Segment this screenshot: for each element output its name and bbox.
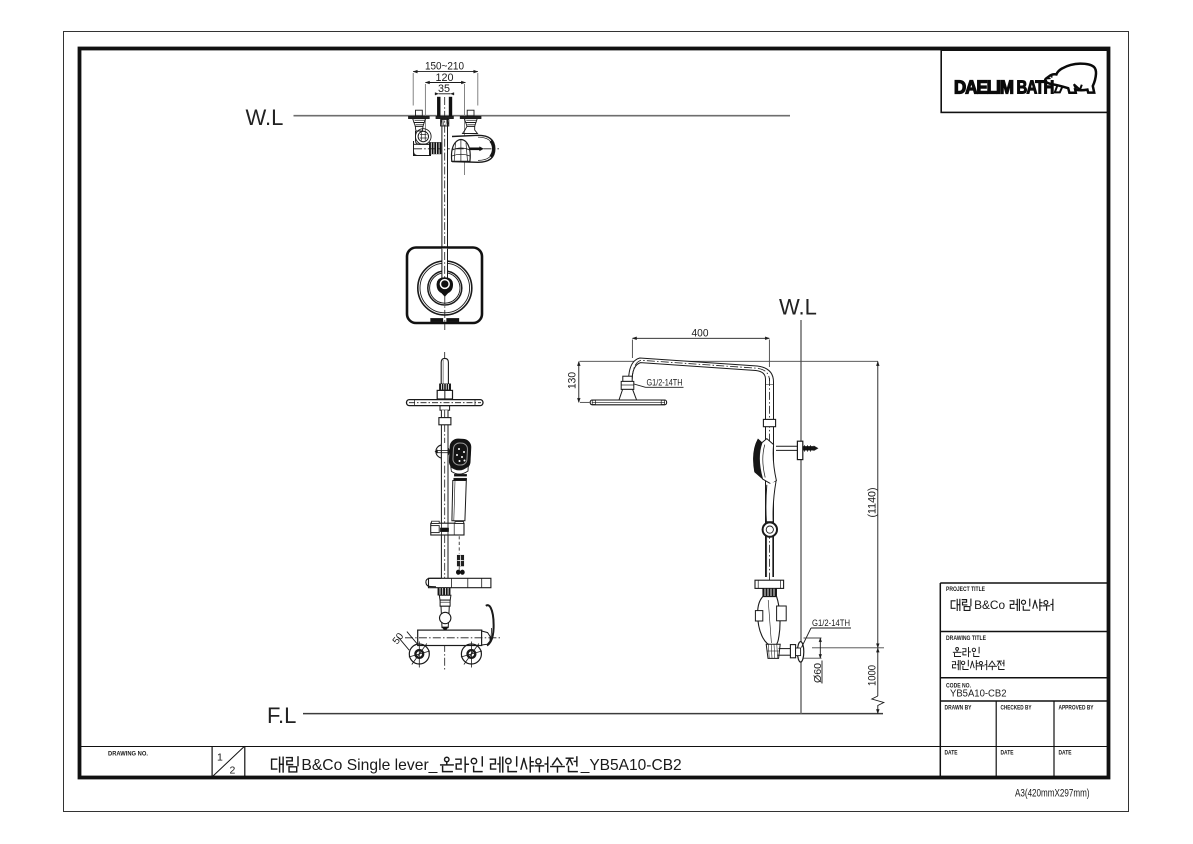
svg-text:PROJECT TITLE: PROJECT TITLE (946, 586, 985, 593)
svg-text:150~210: 150~210 (425, 61, 464, 73)
svg-text:B&Co: B&Co (974, 598, 1005, 612)
svg-text:W.L: W.L (779, 295, 817, 320)
svg-text:35: 35 (438, 83, 450, 95)
svg-text:DRAWING NO.: DRAWING NO. (108, 751, 148, 758)
svg-text:W.L: W.L (246, 105, 284, 130)
svg-text:APPROVED BY: APPROVED BY (1059, 705, 1094, 712)
svg-text:F.L: F.L (267, 703, 296, 728)
svg-text:1000: 1000 (867, 665, 879, 686)
svg-text:DRAWN BY: DRAWN BY (945, 705, 972, 712)
svg-text:DATE: DATE (1001, 750, 1014, 757)
svg-text:YB5A10-CB2: YB5A10-CB2 (950, 689, 1007, 700)
svg-text:400: 400 (692, 328, 709, 340)
svg-text:A3(420mmX297mm): A3(420mmX297mm) (1015, 788, 1090, 800)
svg-text:1: 1 (217, 752, 223, 764)
svg-text:130: 130 (567, 372, 579, 389)
svg-text:CHECKED BY: CHECKED BY (1001, 705, 1032, 712)
svg-text:BATH: BATH (1017, 78, 1054, 98)
svg-text:G1/2-14TH: G1/2-14TH (812, 618, 850, 629)
svg-text:B&Co Single lever_: B&Co Single lever_ (301, 757, 438, 774)
svg-text:DATE: DATE (945, 750, 958, 757)
svg-text:2: 2 (230, 765, 236, 777)
svg-text:(1140): (1140) (867, 488, 879, 518)
svg-text:DRAWING TITLE: DRAWING TITLE (946, 635, 986, 642)
svg-text:DAELIM: DAELIM (954, 78, 1013, 98)
svg-text:_YB5A10-CB2: _YB5A10-CB2 (580, 757, 682, 774)
svg-text:DATE: DATE (1059, 750, 1072, 757)
